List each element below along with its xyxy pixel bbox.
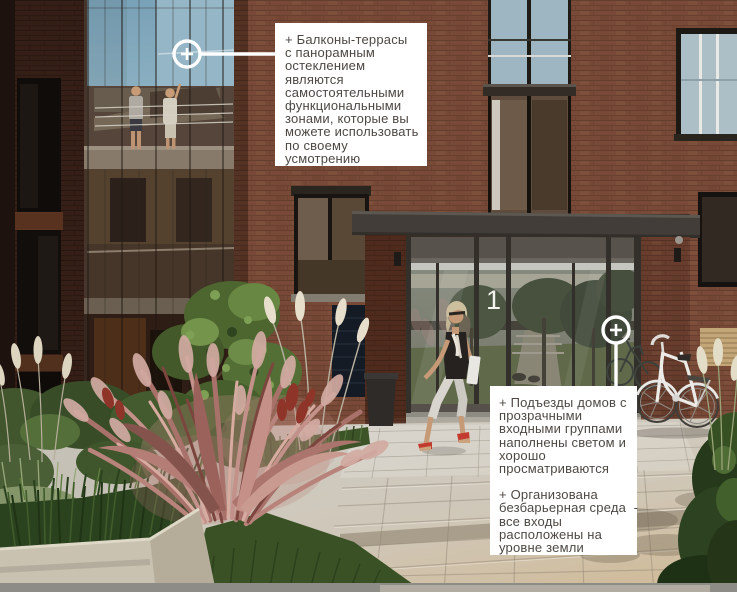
svg-text:1: 1: [486, 285, 501, 315]
